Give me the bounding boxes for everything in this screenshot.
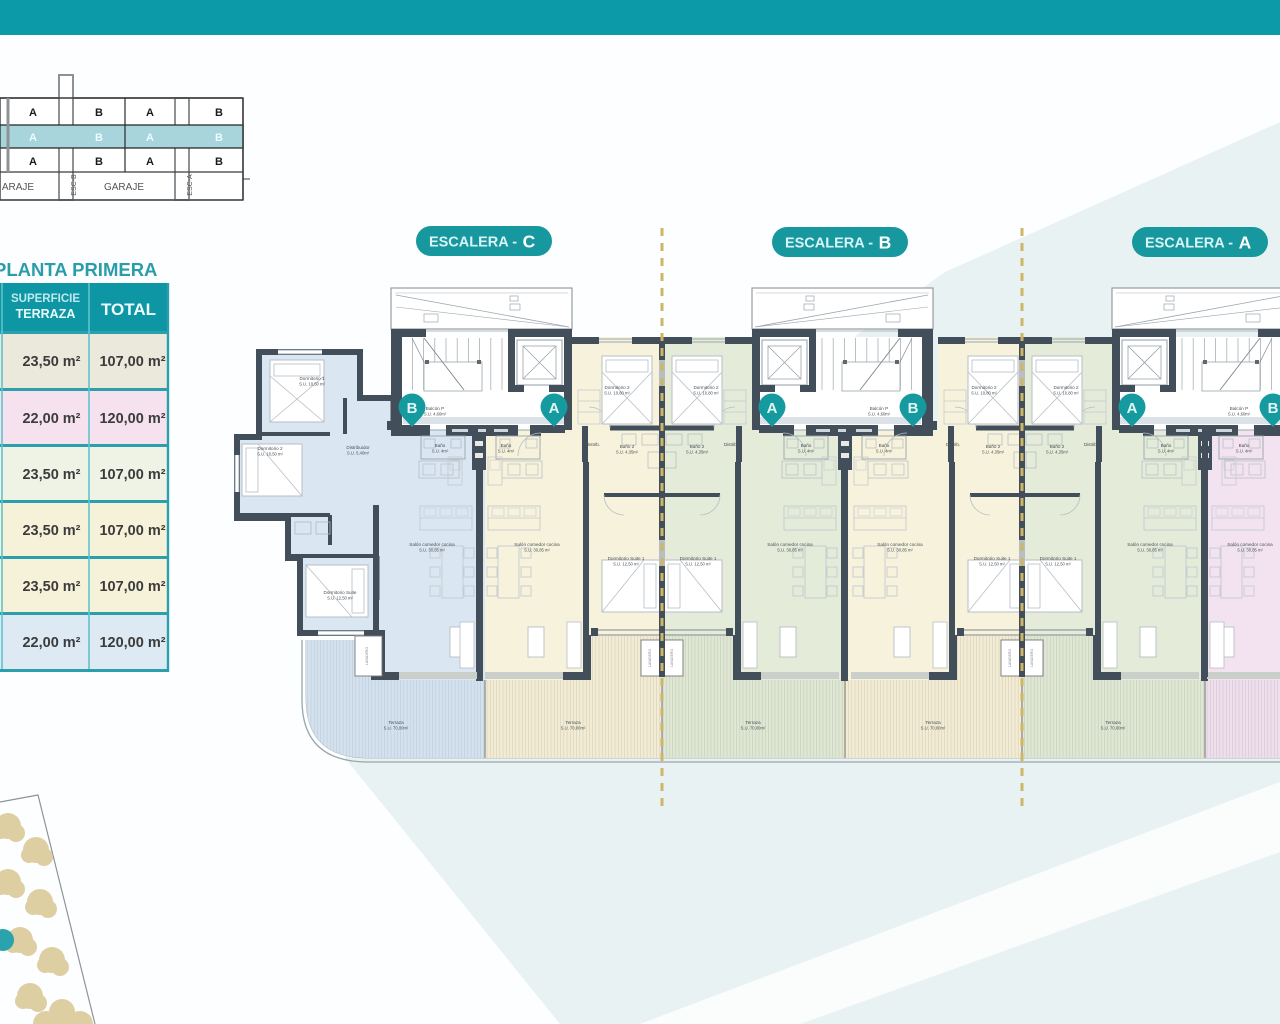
svg-text:Terraza: Terraza: [745, 720, 761, 725]
svg-text:A: A: [146, 107, 154, 119]
svg-text:S.U. 10,50 m²: S.U. 10,50 m²: [299, 382, 325, 387]
svg-text:PLANTA PRIMERA: PLANTA PRIMERA: [0, 259, 157, 280]
svg-text:Salón comedor cocina: Salón comedor cocina: [514, 542, 560, 547]
svg-text:S.U. 4,35m²: S.U. 4,35m²: [1046, 450, 1069, 455]
svg-text:Salón comedor cocina: Salón comedor cocina: [877, 542, 923, 547]
svg-text:Balcón P: Balcón P: [870, 406, 888, 411]
svg-text:23,50 m²: 23,50 m²: [22, 579, 80, 595]
svg-text:22,00 m²: 22,00 m²: [22, 411, 80, 427]
svg-text:S.U. 12,50 m²: S.U. 12,50 m²: [979, 562, 1005, 567]
svg-text:S.U. 12,50 m²: S.U. 12,50 m²: [685, 562, 711, 567]
svg-text:B: B: [95, 132, 103, 144]
svg-text:S.U. 70,00m²: S.U. 70,00m²: [921, 726, 946, 731]
svg-text:Baño: Baño: [435, 443, 446, 448]
svg-text:S.U. 30,85 m²: S.U. 30,85 m²: [419, 548, 445, 553]
svg-text:LAVADERO: LAVADERO: [670, 649, 674, 667]
svg-text:S.U. 4,35m²: S.U. 4,35m²: [616, 450, 639, 455]
svg-text:S.U. 70,00m²: S.U. 70,00m²: [1101, 726, 1126, 731]
svg-text:S.U. 30,85 m²: S.U. 30,85 m²: [1137, 548, 1163, 553]
svg-text:Terraza: Terraza: [925, 720, 941, 725]
svg-text:SUPERFICIE: SUPERFICIE: [11, 293, 80, 305]
svg-text:B: B: [908, 400, 919, 417]
svg-text:ESCALERA -: ESCALERA -: [785, 236, 873, 252]
svg-text:B: B: [407, 400, 418, 417]
svg-text:Dormitorio 2: Dormitorio 2: [257, 446, 282, 451]
svg-text:Salón comedor cocina: Salón comedor cocina: [1227, 542, 1273, 547]
svg-text:Baño 2: Baño 2: [620, 444, 635, 449]
svg-text:S.U. 30,85 m²: S.U. 30,85 m²: [1237, 548, 1263, 553]
svg-text:23,50 m²: 23,50 m²: [22, 523, 80, 539]
svg-text:Balcón P: Balcón P: [1230, 406, 1248, 411]
svg-text:ESCALERA -: ESCALERA -: [1145, 236, 1233, 252]
svg-text:A: A: [767, 400, 778, 417]
svg-text:A: A: [146, 132, 154, 144]
svg-text:Dormitorio 2: Dormitorio 2: [971, 385, 996, 390]
svg-text:S.U. 4m²: S.U. 4m²: [432, 449, 449, 454]
svg-text:Salón comedor cocina: Salón comedor cocina: [1127, 542, 1173, 547]
svg-text:107,00 m²: 107,00 m²: [99, 467, 165, 483]
svg-text:Baño: Baño: [501, 443, 512, 448]
svg-text:Terraza: Terraza: [565, 720, 581, 725]
svg-text:Dormitorio 2: Dormitorio 2: [1053, 385, 1078, 390]
svg-text:Terraza: Terraza: [388, 720, 404, 725]
svg-text:S.U. 10,80 m²: S.U. 10,80 m²: [693, 391, 719, 396]
svg-text:ARAJE: ARAJE: [2, 182, 35, 193]
svg-text:S.U. 10,50 m²: S.U. 10,50 m²: [257, 452, 283, 457]
svg-text:GARAJE: GARAJE: [104, 182, 144, 193]
svg-text:Distribuidor: Distribuidor: [346, 445, 370, 450]
svg-text:S.U. 4m²: S.U. 4m²: [1158, 449, 1175, 454]
svg-text:A: A: [1127, 400, 1138, 417]
svg-text:ESC-A: ESC-A: [187, 174, 194, 196]
svg-text:S.U. 70,00m²: S.U. 70,00m²: [561, 726, 586, 731]
svg-text:Dormitorio 1: Dormitorio 1: [299, 376, 324, 381]
svg-text:TERRAZA: TERRAZA: [16, 307, 76, 321]
svg-text:Baño 2: Baño 2: [986, 444, 1001, 449]
svg-text:Dormitorio Suite 1: Dormitorio Suite 1: [680, 556, 717, 561]
svg-text:Terraza: Terraza: [1105, 720, 1121, 725]
svg-text:Baño: Baño: [879, 443, 890, 448]
svg-text:23,50 m²: 23,50 m²: [22, 467, 80, 483]
svg-text:S.U. 4,35m²: S.U. 4,35m²: [686, 450, 709, 455]
svg-text:Baño 2: Baño 2: [690, 444, 705, 449]
svg-text:Baño: Baño: [801, 443, 812, 448]
svg-text:S.U. 4,60m²: S.U. 4,60m²: [1228, 412, 1251, 417]
svg-text:S.U. 10,80 m²: S.U. 10,80 m²: [1053, 391, 1079, 396]
svg-text:LAVADERO: LAVADERO: [365, 647, 369, 665]
svg-text:S.U. 4m²: S.U. 4m²: [798, 449, 815, 454]
svg-text:C: C: [523, 232, 536, 252]
svg-text:B: B: [95, 107, 103, 119]
svg-text:S.U. 12,50 m²: S.U. 12,50 m²: [613, 562, 639, 567]
svg-text:Distrib.: Distrib.: [946, 442, 960, 447]
svg-text:LAVADERO: LAVADERO: [648, 649, 652, 667]
svg-text:22,00 m²: 22,00 m²: [22, 635, 80, 651]
svg-text:TOTAL: TOTAL: [101, 300, 156, 319]
svg-text:B: B: [879, 233, 892, 253]
svg-text:Dormitorio 2: Dormitorio 2: [693, 385, 718, 390]
svg-text:Baño: Baño: [1239, 443, 1250, 448]
svg-text:ESCALERA -: ESCALERA -: [429, 235, 517, 251]
svg-text:S.U. 12,50 m²: S.U. 12,50 m²: [327, 596, 353, 601]
svg-text:S.U. 10,80 m²: S.U. 10,80 m²: [971, 391, 997, 396]
svg-text:LAVADERO: LAVADERO: [1030, 649, 1034, 667]
svg-text:Baño 2: Baño 2: [1050, 444, 1065, 449]
svg-text:S.U. 4m²: S.U. 4m²: [876, 449, 893, 454]
svg-text:A: A: [29, 132, 37, 144]
svg-text:S.U. 12,50 m²: S.U. 12,50 m²: [1045, 562, 1071, 567]
svg-text:Salón comedor cocina: Salón comedor cocina: [409, 542, 455, 547]
svg-text:S.U. 4,60m²: S.U. 4,60m²: [868, 412, 891, 417]
svg-text:Dormitorio Suite 1: Dormitorio Suite 1: [1040, 556, 1077, 561]
svg-text:ESC-B: ESC-B: [71, 174, 78, 196]
svg-text:107,00 m²: 107,00 m²: [99, 579, 165, 595]
svg-text:S.U. 30,85 m²: S.U. 30,85 m²: [524, 548, 550, 553]
svg-text:Distrib.: Distrib.: [724, 442, 738, 447]
svg-text:S.U. 5,40m²: S.U. 5,40m²: [347, 451, 370, 456]
svg-text:Dormitorio 2: Dormitorio 2: [604, 385, 629, 390]
svg-text:B: B: [215, 107, 223, 119]
svg-text:Balcón P: Balcón P: [426, 406, 444, 411]
svg-text:Distrib.: Distrib.: [1084, 442, 1098, 447]
svg-text:Dormitorio Suite: Dormitorio Suite: [324, 590, 357, 595]
svg-text:Dormitorio Suite 1: Dormitorio Suite 1: [974, 556, 1011, 561]
svg-text:120,00 m²: 120,00 m²: [99, 635, 165, 651]
svg-text:Distrib.: Distrib.: [586, 442, 600, 447]
svg-text:107,00 m²: 107,00 m²: [99, 354, 165, 370]
svg-text:Dormitorio Suite 1: Dormitorio Suite 1: [608, 556, 645, 561]
svg-text:A: A: [1239, 233, 1252, 253]
svg-text:23,50 m²: 23,50 m²: [22, 354, 80, 370]
svg-text:B: B: [215, 156, 223, 168]
svg-text:A: A: [549, 400, 560, 417]
svg-text:S.U. 70,00m²: S.U. 70,00m²: [384, 726, 409, 731]
svg-text:S.U. 4m²: S.U. 4m²: [498, 449, 515, 454]
svg-text:120,00 m²: 120,00 m²: [99, 411, 165, 427]
svg-text:A: A: [146, 156, 154, 168]
svg-text:S.U. 70,00m²: S.U. 70,00m²: [741, 726, 766, 731]
svg-text:Salón comedor cocina: Salón comedor cocina: [767, 542, 813, 547]
svg-text:S.U. 30,85 m²: S.U. 30,85 m²: [887, 548, 913, 553]
svg-text:LAVADERO: LAVADERO: [1008, 649, 1012, 667]
svg-text:A: A: [29, 156, 37, 168]
svg-text:B: B: [95, 156, 103, 168]
svg-text:Baño: Baño: [1161, 443, 1172, 448]
svg-text:A: A: [29, 107, 37, 119]
svg-text:S.U. 4,60m²: S.U. 4,60m²: [424, 412, 447, 417]
svg-text:S.U. 30,85 m²: S.U. 30,85 m²: [777, 548, 803, 553]
svg-text:S.U. 4m²: S.U. 4m²: [1236, 449, 1253, 454]
svg-text:B: B: [215, 132, 223, 144]
svg-text:S.U. 10,80 m²: S.U. 10,80 m²: [604, 391, 630, 396]
svg-text:S.U. 4,35m²: S.U. 4,35m²: [982, 450, 1005, 455]
svg-text:107,00 m²: 107,00 m²: [99, 523, 165, 539]
svg-text:B: B: [1268, 400, 1279, 417]
